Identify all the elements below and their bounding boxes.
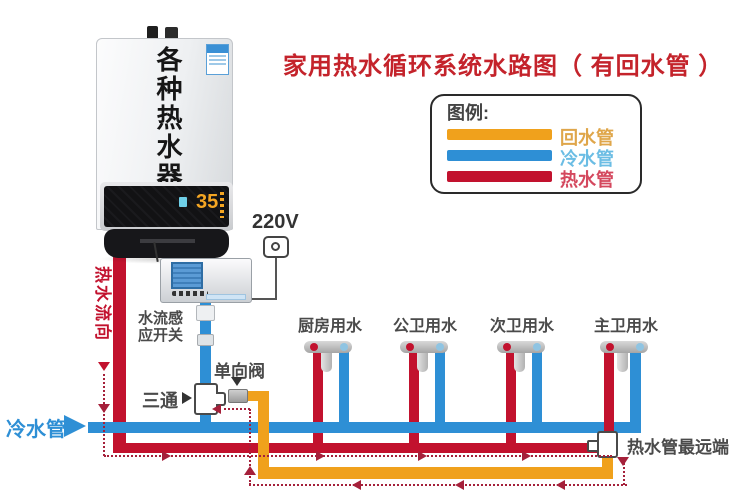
end-fitting (597, 431, 618, 458)
flow-arrow-right-icon (162, 451, 171, 461)
return-pipe-down (258, 391, 269, 476)
flow-arrow-right-icon (316, 451, 325, 461)
flow-arrow-right-icon (418, 451, 427, 461)
cold-pipe-faucet-1 (339, 350, 349, 424)
cold-pipe-faucet-3 (532, 350, 542, 424)
cold-pipe-label: 冷水管 (6, 413, 66, 442)
flow-sensor-label: 水流感 应开关 (138, 310, 196, 344)
flow-arrow-left-icon (212, 404, 221, 414)
flow-arrow-down-icon (98, 362, 110, 371)
flow-sensor-buttons (172, 291, 208, 296)
faucet-label-second-bath: 次卫用水 (477, 312, 567, 336)
hot-flow-dotted-vertical (103, 374, 105, 456)
heater-base (104, 229, 229, 258)
hot-pipe-faucet-4 (604, 350, 614, 434)
tee-label: 三通 (142, 387, 178, 413)
pipe-connector-2 (197, 334, 214, 346)
faucet-hot-inlet (406, 343, 414, 351)
power-wire-vertical (275, 257, 277, 300)
farthest-end-label: 热水管最远端 (627, 433, 729, 458)
return-pipe-bottom-run (258, 467, 613, 479)
faucet-cold-inlet (340, 343, 348, 351)
flow-sensor-screen (171, 262, 203, 289)
hot-flow-direction-label: 热水流向 (92, 266, 117, 342)
diagram-canvas: 家用热水循环系统水路图（ 有回水管 ） 图例: 回水管 冷水管 热水管 各种热水… (0, 0, 754, 491)
return-flow-dotted-down (623, 463, 625, 485)
tee-pointer-icon (182, 392, 192, 404)
hot-flow-dotted-horizontal (104, 455, 612, 457)
page-title: 家用热水循环系统水路图（ 有回水管 ） (283, 46, 723, 81)
power-wire-horizontal (252, 298, 277, 300)
faucet-label-public-bath: 公卫用水 (380, 312, 470, 336)
legend-swatch-return-pipe (447, 129, 552, 140)
energy-efficiency-label (206, 44, 229, 75)
cold-pipe-faucet-4 (630, 350, 641, 428)
cold-inlet-arrow-icon (64, 415, 86, 437)
check-valve (228, 389, 248, 403)
cold-pipe-faucet-2 (435, 350, 445, 424)
check-valve-pointer-icon (231, 377, 243, 386)
flow-arrow-left-icon (455, 480, 464, 490)
heater-name-text: 各种热水器 (151, 46, 185, 191)
flow-sensor-label-strip (206, 294, 246, 300)
flow-arrow-down-icon (98, 404, 110, 413)
legend-swatch-hot-pipe (447, 171, 552, 182)
power-voltage-label: 220V (252, 211, 299, 234)
heater-display-ticks (220, 192, 224, 218)
heater-base-strip (140, 239, 195, 243)
legend-swatch-cold-pipe (447, 150, 552, 161)
pipe-connector (196, 305, 215, 321)
flow-arrow-right-icon (522, 451, 531, 461)
flow-arrow-left-icon (556, 480, 565, 490)
faucet-label-kitchen: 厨房用水 (285, 312, 375, 336)
faucet-hot-inlet (310, 343, 318, 351)
cold-pipe-main (88, 422, 641, 433)
faucet-cold-inlet (436, 343, 444, 351)
legend-heading: 图例: (447, 99, 489, 125)
heater-temp-display: 35 (196, 191, 218, 214)
return-flow-dotted-horizontal (249, 484, 627, 486)
faucet-label-master-bath: 主卫用水 (581, 312, 671, 336)
faucet-cold-inlet (636, 343, 644, 351)
hot-pipe-main (113, 443, 610, 453)
power-outlet-hole (271, 242, 280, 251)
flow-arrow-left-icon (352, 480, 361, 490)
faucet-cold-inlet (533, 343, 541, 351)
faucet-hot-inlet (503, 343, 511, 351)
heater-display-icon (179, 197, 187, 207)
flow-arrow-up-icon (244, 466, 256, 475)
legend-label-hot-pipe: 热水管 (560, 166, 614, 192)
return-flow-dotted-to-tee (224, 408, 250, 410)
faucet-hot-inlet (606, 343, 614, 351)
